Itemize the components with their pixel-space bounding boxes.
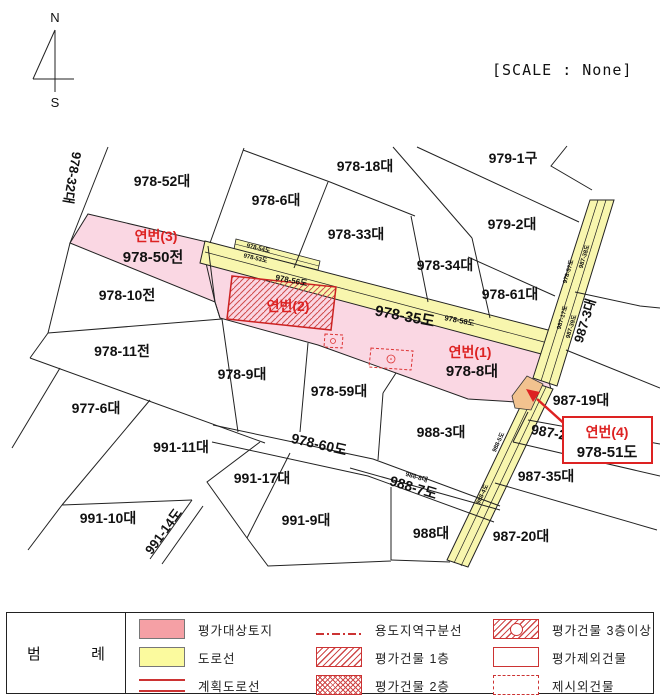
map-label-987-20: 987-20대 xyxy=(493,528,549,544)
map-label-978-8: 978-8대 xyxy=(446,363,498,380)
map-label-987-35: 987-35대 xyxy=(518,468,574,484)
roads-yellow xyxy=(200,200,614,567)
map-label-988: 988대 xyxy=(413,525,449,541)
map-label-979-2: 979-2대 xyxy=(488,216,537,232)
red-lines-swatch-icon xyxy=(139,675,185,695)
map-label-978-61: 978-61대 xyxy=(482,286,538,302)
map-label-991-17: 991-17대 xyxy=(234,470,290,486)
map-label-compass-n: N xyxy=(50,10,59,25)
map-label-988-3: 988-3대 xyxy=(417,424,466,440)
map-label-978-18: 978-18대 xyxy=(337,158,393,174)
map-label-978-9: 978-9대 xyxy=(218,366,267,382)
legend: 범 례 평가대상토지 도로선 계획도로선 용도지역구분선 평가건물 1층 평가건… xyxy=(6,612,654,694)
map-label-978-59: 978-59대 xyxy=(311,383,367,399)
map-label-979-1: 979-1구 xyxy=(489,150,538,166)
map-label-991-14ro: 991-14도 xyxy=(142,506,185,557)
map-label-978-52: 978-52대 xyxy=(134,173,190,189)
map-label-yeonbeon-1: 연번(1) xyxy=(449,344,492,360)
legend-label: 평가제외건물 xyxy=(552,648,627,667)
legend-label: 용도지역구분선 xyxy=(375,620,463,639)
legend-item-road-line: 도로선 xyxy=(139,646,236,668)
legend-label: 평가대상토지 xyxy=(198,620,273,639)
legend-label: 도로선 xyxy=(198,648,236,667)
map-label-978-34: 978-34대 xyxy=(417,257,473,273)
map-label-compass-s: S xyxy=(51,95,60,110)
pink-swatch-icon xyxy=(139,619,185,639)
legend-title: 범 례 xyxy=(7,613,126,693)
legend-item-building-3f-plus: 평가건물 3층이상 xyxy=(493,618,652,640)
map-label-978-10: 978-10전 xyxy=(99,287,155,303)
yellow-swatch-icon xyxy=(139,647,185,667)
map-label-978-6: 978-6대 xyxy=(252,192,301,208)
map-label-978-33: 978-33대 xyxy=(328,226,384,242)
legend-item-zoning-line: 용도지역구분선 xyxy=(316,618,463,640)
legend-item-excluded-building: 평가제외건물 xyxy=(493,646,627,668)
legend-label: 평가건물 1층 xyxy=(375,648,450,667)
legend-item-planned-road: 계획도로선 xyxy=(139,674,261,696)
map-label-978-51ro: 978-51도 xyxy=(577,444,638,461)
legend-label: 제시외건물 xyxy=(552,676,615,695)
map-label-978-60ro: 978-60도 xyxy=(290,430,349,458)
dashed-box-swatch-icon xyxy=(493,675,539,695)
map-label-yeonbeon-3: 연번(3) xyxy=(135,228,178,244)
legend-item-unlisted-building: 제시외건물 xyxy=(493,674,615,696)
map-label-991-9: 991-9대 xyxy=(282,512,331,528)
plain-box-swatch-icon xyxy=(493,647,539,667)
map-label-991-11: 991-11대 xyxy=(153,439,209,455)
map-label-978-32: 978-32대 xyxy=(60,151,84,205)
map-label-987-19: 987-19대 xyxy=(553,392,609,408)
map-label-978-50: 978-50전 xyxy=(123,249,184,266)
map-label-977-6: 977-6대 xyxy=(72,400,121,416)
appraisal-map-page: { "scale_text": "[SCALE : None]", "compa… xyxy=(0,0,660,700)
map-label-991-10: 991-10대 xyxy=(80,510,136,526)
dashdot-line-swatch-icon xyxy=(316,633,362,635)
legend-label: 평가건물 2층 xyxy=(375,676,450,695)
map-label-978-11: 978-11전 xyxy=(94,343,150,359)
hatch-circle-swatch-icon xyxy=(493,619,539,639)
map-label-yeonbeon-4: 연번(4) xyxy=(586,424,629,440)
diag-hatch-swatch-icon xyxy=(316,647,362,667)
map-label-yeonbeon-2: 연번(2) xyxy=(267,298,310,314)
cross-hatch-swatch-icon xyxy=(316,675,362,695)
scale-text: [SCALE : None] xyxy=(492,61,632,79)
legend-item-building-1f: 평가건물 1층 xyxy=(316,646,450,668)
legend-item-subject-land: 평가대상토지 xyxy=(139,618,273,640)
legend-label: 계획도로선 xyxy=(198,676,261,695)
legend-item-building-2f: 평가건물 2층 xyxy=(316,674,450,696)
cadastral-map: NS978-32대978-52대978-18대979-1구978-6대978-3… xyxy=(0,0,660,700)
legend-label: 평가건물 3층이상 xyxy=(552,620,652,639)
compass xyxy=(33,30,74,92)
